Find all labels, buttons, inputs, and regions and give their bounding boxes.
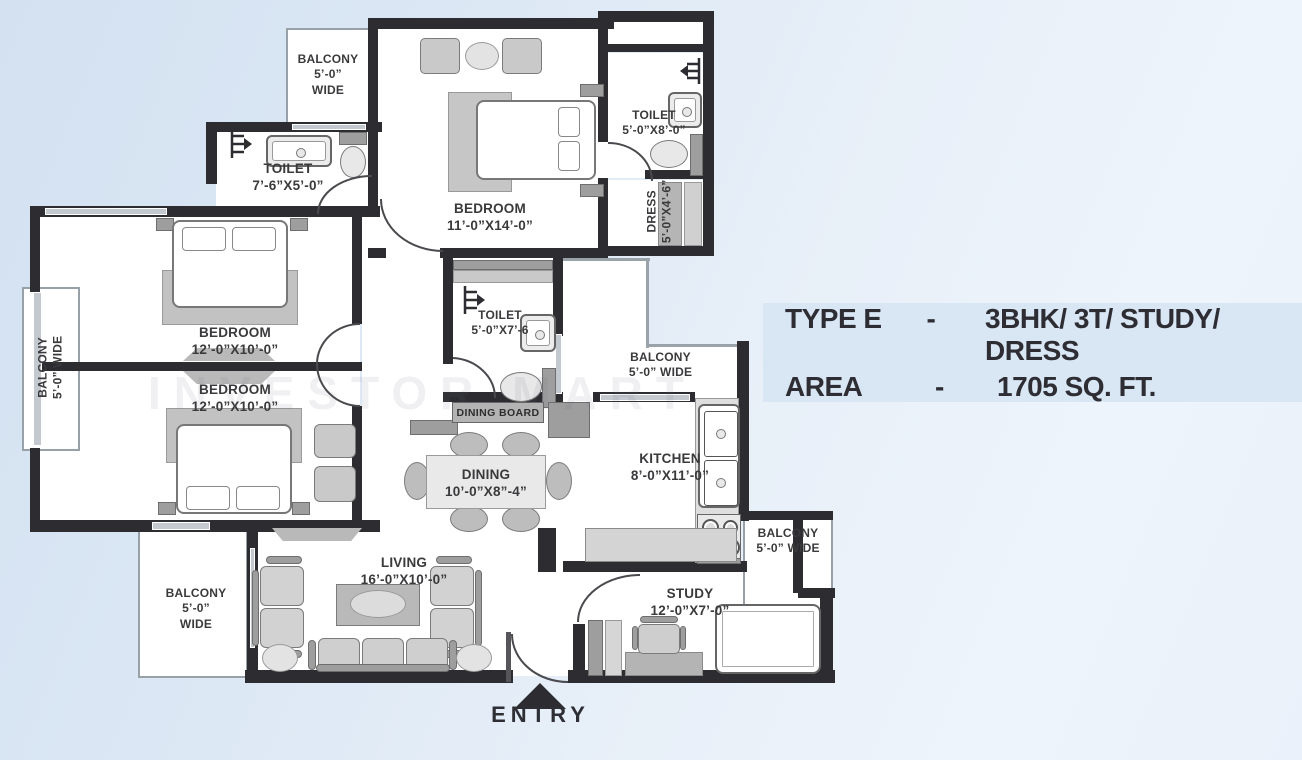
wall-segment [368, 18, 378, 217]
pillow [186, 486, 230, 510]
toilet-tank [339, 132, 367, 145]
balcony-top-left-label: BALCONY 5’-0” WIDE [286, 52, 370, 98]
area-value: 1705 SQ. FT. [997, 371, 1156, 403]
type-row: TYPE E - 3BHK/ 3T/ STUDY/ DRESS [785, 303, 1302, 367]
desk-chair [638, 624, 680, 654]
sideboard [410, 420, 458, 435]
study-label: STUDY 12’-0”X7’-0” [615, 585, 765, 620]
shelf [453, 270, 553, 283]
type-label: TYPE E [785, 303, 927, 335]
area-row: AREA - 1705 SQ. FT. [785, 371, 1302, 403]
bedroom-lower-label: BEDROOM 12’-0”X10’-0” [150, 381, 320, 416]
living-label: LIVING 16’-0”X10’-0” [330, 554, 478, 589]
bedroom-top-label: BEDROOM 11’-0”X14’-0” [410, 200, 570, 235]
coffee-table [350, 590, 406, 618]
window [292, 124, 366, 130]
nightstand [158, 502, 176, 515]
wardrobe [684, 182, 702, 246]
wall-segment [608, 44, 704, 52]
nightstand [580, 84, 604, 97]
wall-segment [538, 528, 556, 572]
toilet-top-left-label: TOILET 7’-6”X5’-0” [228, 160, 348, 195]
armchair [260, 566, 304, 606]
dining-label: DINING 10’-0”X8”-4” [426, 466, 546, 501]
toilet-tank [690, 134, 703, 176]
bedroom-mid-label: BEDROOM 12’-0”X10’-0” [150, 324, 320, 359]
type-separator: - [927, 303, 986, 335]
balcony-mid-edge [562, 258, 650, 261]
dining-board: DINING BOARD [452, 402, 544, 423]
cabinet [588, 620, 603, 676]
balcony-mid-floor-upper [562, 260, 648, 348]
balcony-mid-edge [646, 258, 649, 348]
dining-chair [502, 506, 540, 532]
side-table [456, 644, 492, 672]
nightstand [580, 184, 604, 197]
balcony-left-label: BALCONY 5’-0” WIDE [36, 292, 67, 442]
wall-segment [443, 248, 453, 364]
entry-label: ENTRY [478, 702, 603, 728]
pillow [558, 107, 580, 137]
balcony-bottom-left-label: BALCONY 5’-0” WIDE [150, 586, 242, 632]
pillow [232, 227, 276, 251]
wall-segment [30, 206, 40, 292]
nightstand [290, 218, 308, 231]
floor-plan-canvas: INVESTOR MART [0, 0, 1302, 760]
wall-segment [352, 216, 362, 324]
window [152, 522, 210, 530]
window [45, 208, 167, 215]
wall-segment [820, 592, 833, 678]
chair-arm [680, 626, 686, 650]
side-table [262, 644, 298, 672]
pillow [182, 227, 226, 251]
wall-segment [368, 248, 386, 258]
chair [420, 38, 460, 74]
wall-segment [206, 122, 217, 184]
toilet-mid-label: TOILET 5’-0”X7’-6 [448, 308, 552, 339]
pillow [558, 141, 580, 171]
armchair [260, 608, 304, 648]
dining-board-label: DINING BOARD [457, 407, 540, 419]
shelf [453, 260, 553, 270]
chair [314, 466, 356, 502]
chair [502, 38, 542, 74]
kitchen-label: KITCHEN 8’-0”X11’-0” [600, 450, 740, 485]
tv-console [272, 528, 362, 541]
round-table [465, 42, 499, 70]
wall-segment [368, 18, 614, 29]
wall-segment [743, 511, 833, 520]
area-separator: - [935, 371, 997, 403]
balcony-right-label: BALCONY 5’-0” WIDE [744, 526, 832, 557]
type-value: 3BHK/ 3T/ STUDY/ DRESS [985, 303, 1302, 367]
dining-chair [546, 462, 572, 500]
armrest [266, 556, 302, 564]
chair [314, 424, 356, 458]
sofa-front [316, 664, 450, 672]
balcony-mid-label: BALCONY 5’-0” WIDE [588, 350, 733, 381]
toilet-top-right-label: TOILET 5’-0”X8’-0” [602, 108, 706, 139]
sofa-arm [308, 640, 316, 670]
wall-segment [440, 248, 608, 258]
nightstand [292, 502, 310, 515]
armrest [252, 570, 259, 646]
dress-label: DRESS 5’-0”X4’-6” [645, 151, 676, 271]
balcony-mid-edge [646, 344, 744, 347]
pillow [236, 486, 280, 510]
area-label: AREA [785, 371, 935, 403]
kitchen-counter [585, 528, 737, 562]
info-panel: TYPE E - 3BHK/ 3T/ STUDY/ DRESS AREA - 1… [763, 303, 1302, 402]
dining-chair [450, 506, 488, 532]
wall-segment [598, 11, 714, 22]
cabinet [605, 620, 622, 676]
desk [625, 652, 703, 676]
